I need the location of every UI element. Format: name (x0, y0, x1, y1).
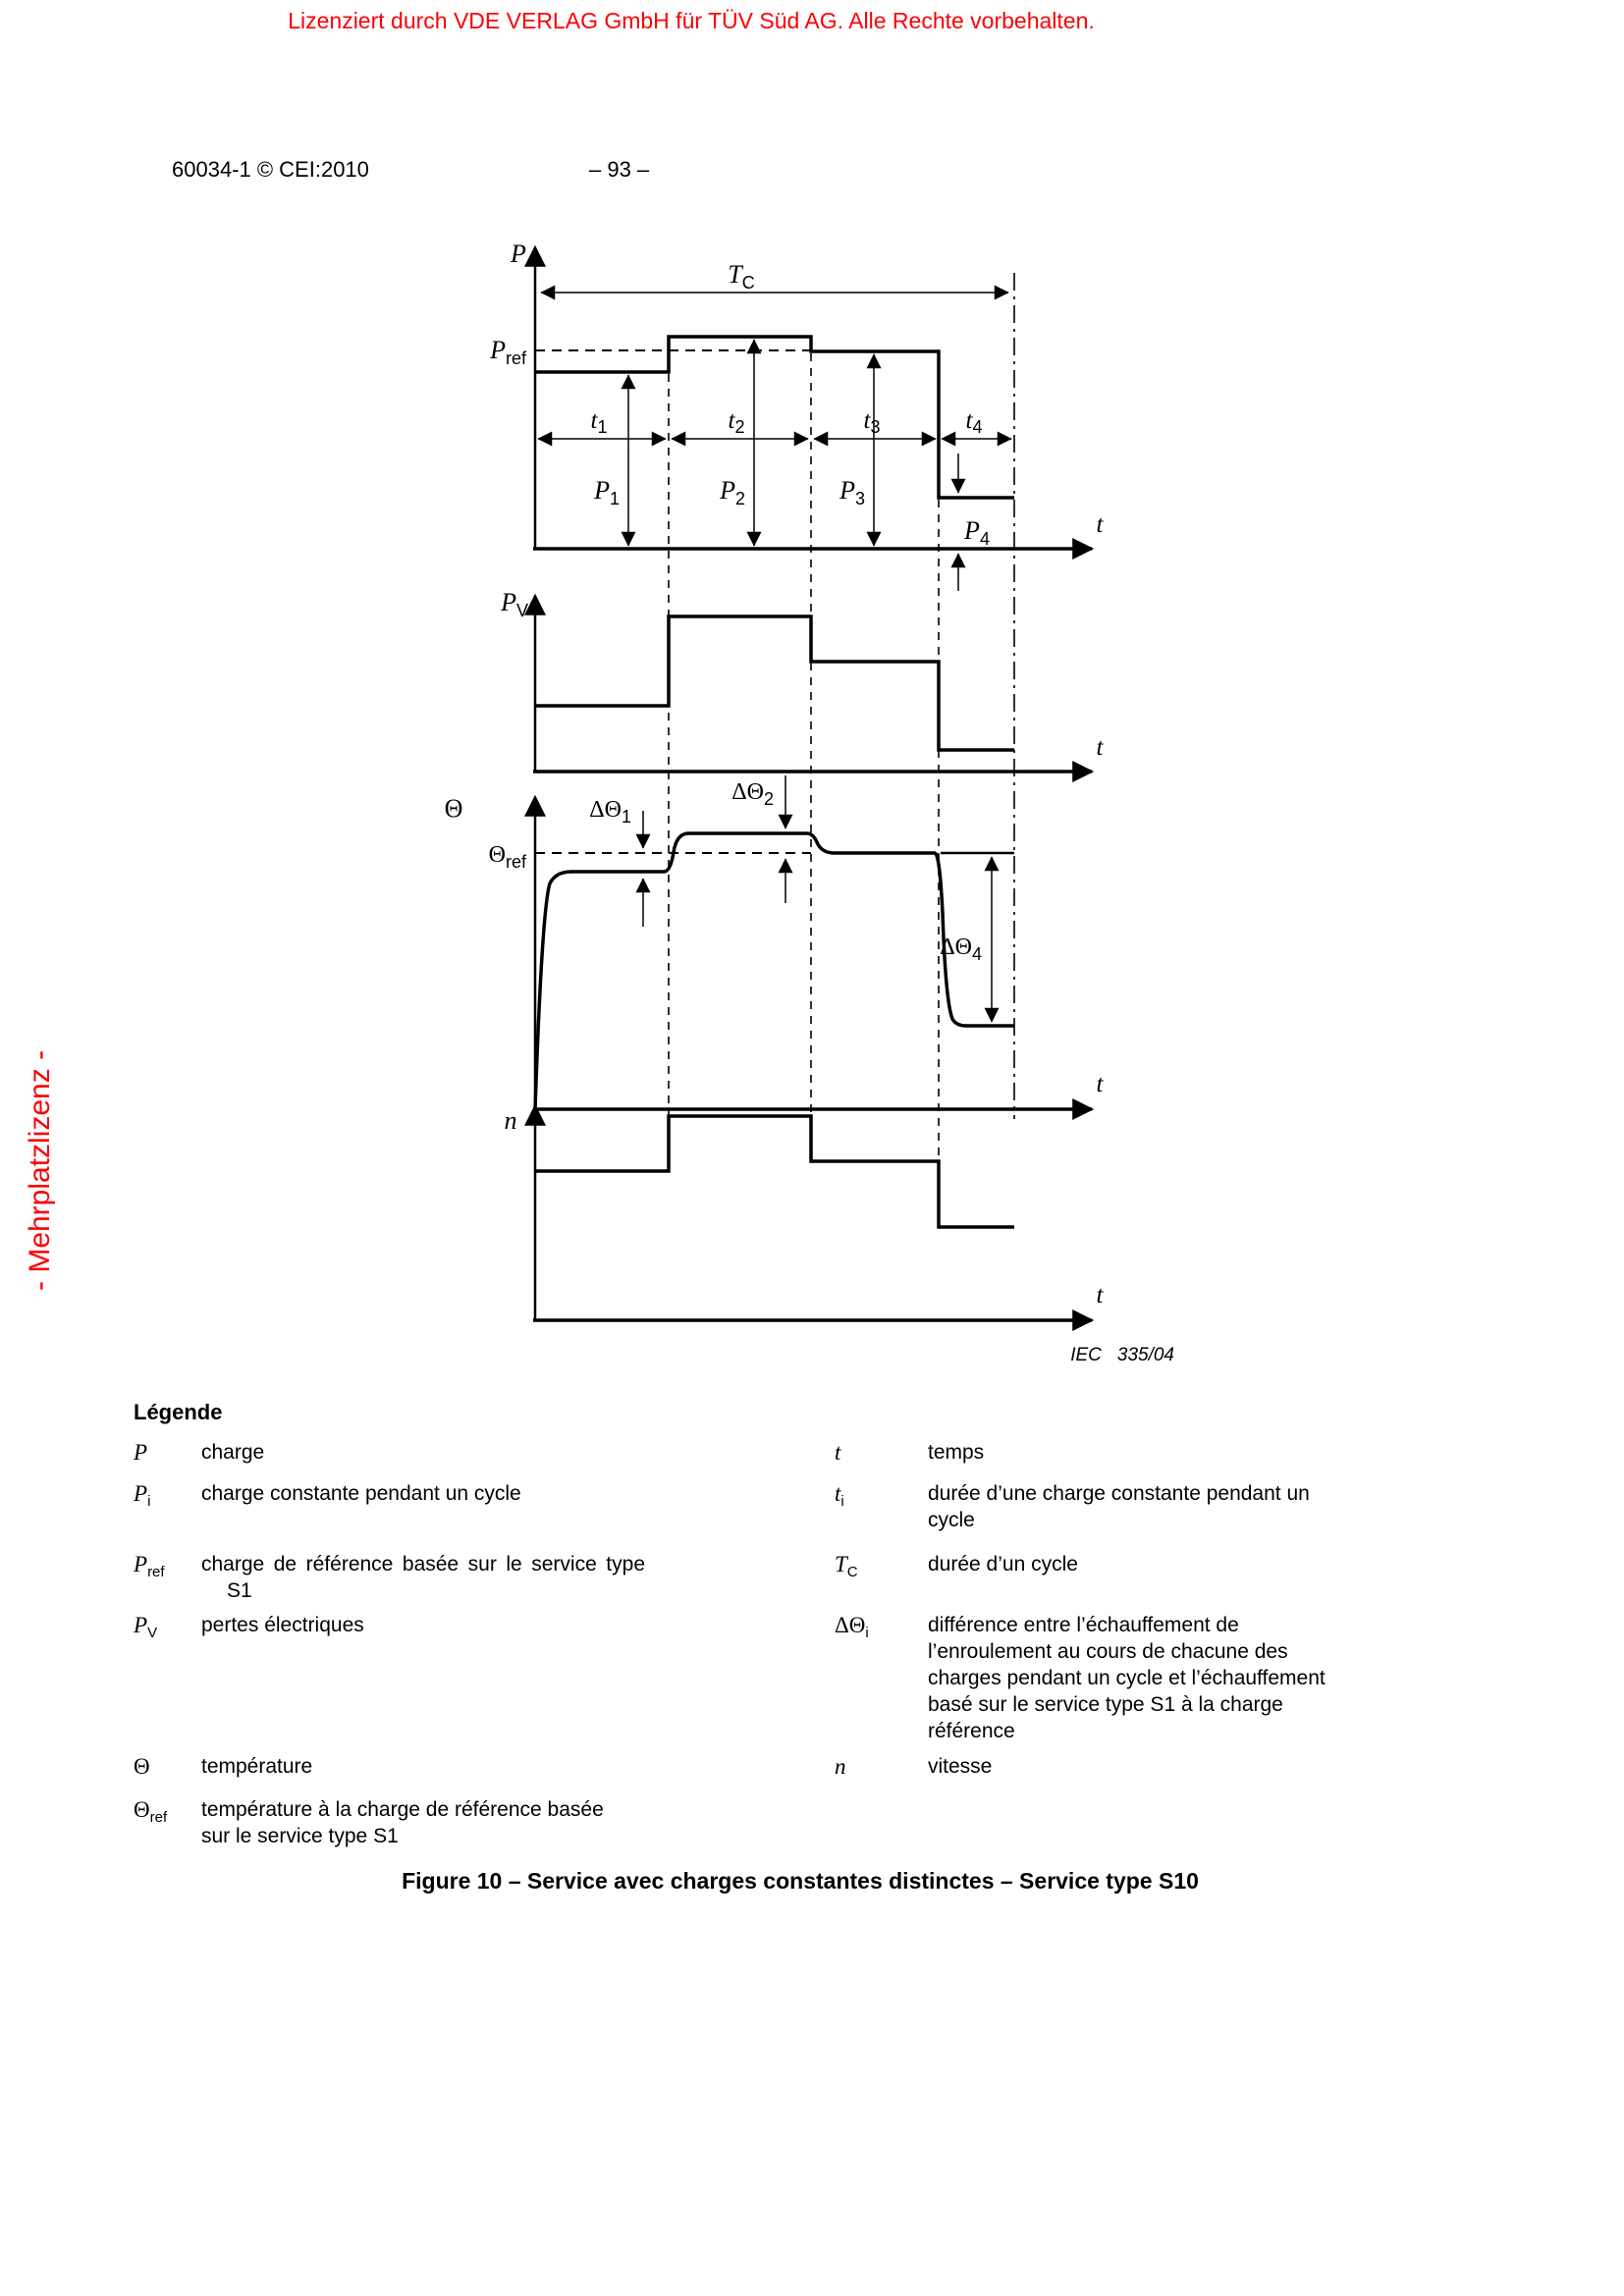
theta-temperature-curve (535, 833, 1014, 1109)
panel-speed-n: n t IEC335/04 (505, 1106, 1175, 1365)
symbol-t: t (835, 1439, 840, 1467)
figure-diagram: P t TC Pref t1 t2 t3 t4 P1 P2 P3 P4 PV t (373, 226, 1188, 1394)
legend-title: Légende (134, 1400, 222, 1425)
n-speed-curve (535, 1116, 1014, 1227)
symbol-theta: Θ (134, 1753, 150, 1781)
thetaref-label: Θref (489, 842, 527, 872)
theta-axis-label: Θ (445, 794, 463, 823)
pv-time-label: t (1097, 734, 1105, 761)
theta-time-label: t (1097, 1071, 1105, 1097)
pref-label: Pref (489, 336, 527, 368)
p-time-label: t (1097, 511, 1105, 538)
page-number: – 93 – (589, 157, 649, 183)
delta-theta2-label: ΔΘ2 (731, 779, 774, 809)
figure-caption: Figure 10 – Service avec charges constan… (402, 1868, 1199, 1895)
license-notice: Lizenziert durch VDE VERLAG GmbH für TÜV… (288, 8, 1095, 34)
legend-text-duree-charge: durée d’une charge constante pendant un … (928, 1480, 1340, 1533)
legend-text-temps: temps (928, 1439, 1340, 1466)
pv-losses-curve (535, 616, 1014, 750)
legend-text-temperature-reference: température à la charge de référence bas… (201, 1796, 645, 1849)
p4-label: P4 (963, 516, 990, 549)
p1-label: P1 (593, 476, 620, 508)
legend-text-difference-echauffement: différence entre l’échauffement de l’enr… (928, 1612, 1340, 1744)
delta-theta1-label: ΔΘ1 (589, 797, 631, 827)
t1-label: t1 (591, 407, 608, 437)
t3-label: t3 (864, 407, 881, 437)
symbol-p-v: PV (134, 1612, 157, 1646)
legend-text-charge: charge (201, 1439, 645, 1466)
pv-axis-label: PV (500, 588, 528, 620)
p-axis-label: P (510, 240, 526, 268)
symbol-n: n (835, 1753, 846, 1781)
side-license-notice: - Mehrplatzlizenz - (24, 1050, 57, 1291)
panel-load-p: P t TC Pref t1 t2 t3 t4 P1 P2 P3 P4 (489, 240, 1104, 591)
legend-text-charge-reference: charge de référence basée sur le service… (201, 1551, 645, 1604)
tc-label: TC (728, 260, 754, 293)
p2-label: P2 (719, 476, 745, 508)
t2-label: t2 (729, 407, 745, 437)
legend-text-pertes: pertes électriques (201, 1612, 645, 1638)
symbol-t-i: ti (835, 1480, 844, 1515)
n-axis-label: n (505, 1106, 517, 1135)
panel-temperature-theta: Θ t Θref ΔΘ1 ΔΘ2 ΔΘ4 (445, 775, 1105, 1109)
t4-label: t4 (966, 407, 983, 437)
document-reference: 60034-1 © CEI:2010 (172, 157, 369, 183)
n-time-label: t (1097, 1282, 1105, 1308)
delta-theta4-label: ΔΘ4 (940, 934, 982, 964)
symbol-p-i: Pi (134, 1480, 150, 1515)
figure-credit: IEC335/04 (1070, 1345, 1174, 1365)
symbol-delta-theta-i: ΔΘi (835, 1612, 869, 1646)
legend-text-temperature: température (201, 1753, 645, 1780)
symbol-t-c: TC (835, 1551, 858, 1585)
symbol-p-ref: Pref (134, 1551, 165, 1585)
legend-text-duree-cycle: durée d’un cycle (928, 1551, 1340, 1577)
legend-text-charge-constante: charge constante pendant un cycle (201, 1480, 645, 1507)
legend-text-vitesse: vitesse (928, 1753, 1340, 1780)
symbol-theta-ref: Θref (134, 1796, 167, 1831)
symbol-p: P (134, 1439, 147, 1467)
standards-page: { "page": { "license_notice": "Lizenzier… (0, 0, 1624, 2296)
p3-label: P3 (839, 476, 865, 508)
